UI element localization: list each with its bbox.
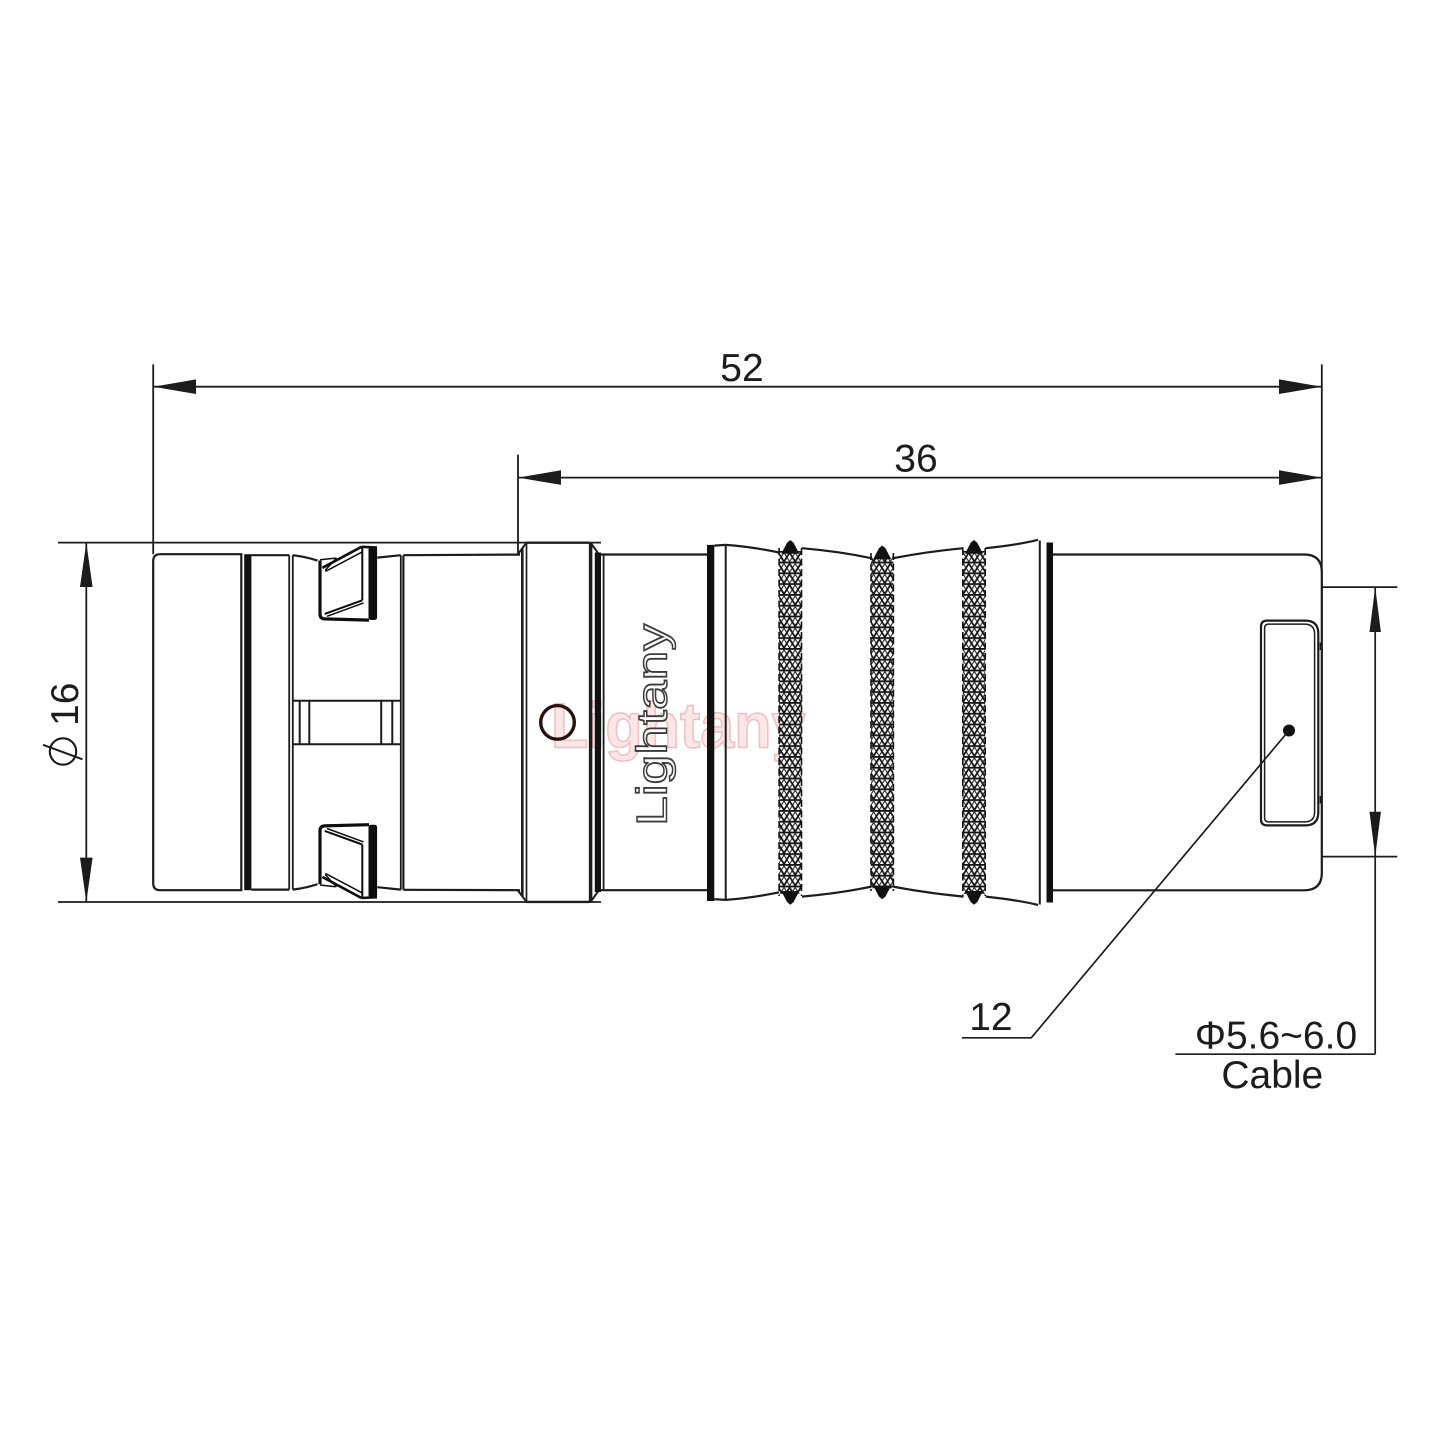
svg-text:16: 16 (44, 683, 87, 726)
svg-text:Cable: Cable (1221, 1054, 1323, 1097)
svg-text:Lightany: Lightany (628, 623, 676, 826)
svg-text:52: 52 (720, 347, 763, 390)
svg-text:Φ5.6~6.0: Φ5.6~6.0 (1195, 1015, 1357, 1058)
svg-text:36: 36 (894, 438, 937, 481)
svg-text:12: 12 (969, 996, 1012, 1039)
